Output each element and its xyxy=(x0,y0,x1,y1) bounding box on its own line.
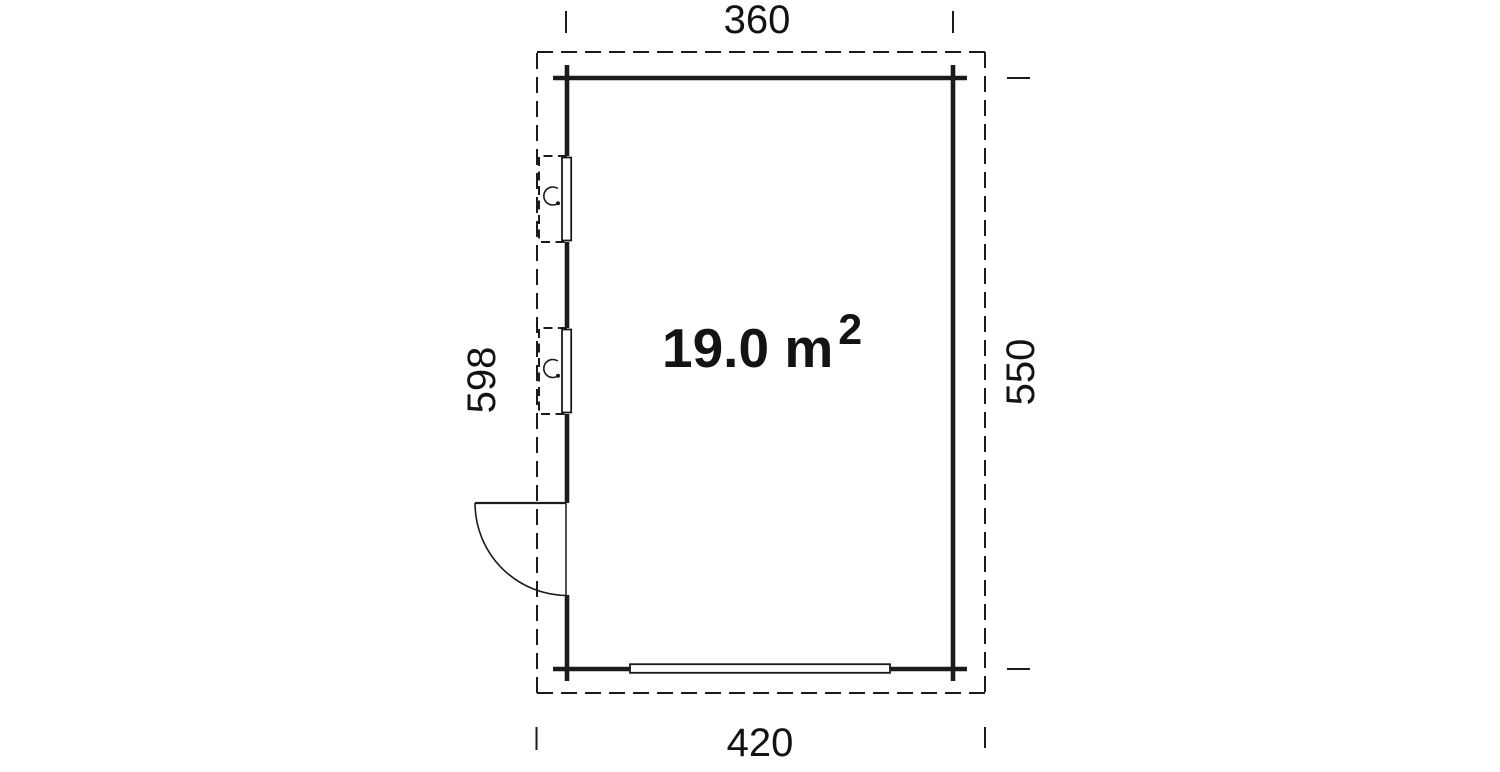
window-tilt-icon-dot xyxy=(556,374,560,378)
area-label-main: 19.0 m xyxy=(662,317,833,379)
floor-plan-canvas: 360 420 598 550 19.0 m2 xyxy=(0,0,1500,772)
area-label: 19.0 m2 xyxy=(662,306,862,379)
entrance-door xyxy=(475,503,568,596)
dimension-ticks xyxy=(537,11,1031,750)
dimension-label-right: 550 xyxy=(999,339,1043,406)
window-1-frame xyxy=(562,158,571,241)
dimension-label-left: 598 xyxy=(460,347,504,414)
garage-door xyxy=(630,664,890,673)
window-tilt-icon xyxy=(544,187,558,205)
garage-door-icon xyxy=(630,664,890,673)
plan-linework xyxy=(475,11,1030,750)
area-label-superscript: 2 xyxy=(838,306,862,354)
dimension-label-bottom: 420 xyxy=(727,721,794,765)
plan-labels: 360 420 598 550 19.0 m2 xyxy=(460,0,1043,765)
window-2-frame xyxy=(562,330,571,413)
window-2 xyxy=(539,328,571,414)
window-tilt-icon xyxy=(544,360,558,378)
floor-plan-svg: 360 420 598 550 19.0 m2 xyxy=(0,0,1500,772)
window-tilt-icon-dot xyxy=(556,201,560,205)
dimension-label-top: 360 xyxy=(724,0,791,42)
door-swing-icon xyxy=(475,503,568,596)
window-1 xyxy=(539,156,571,242)
